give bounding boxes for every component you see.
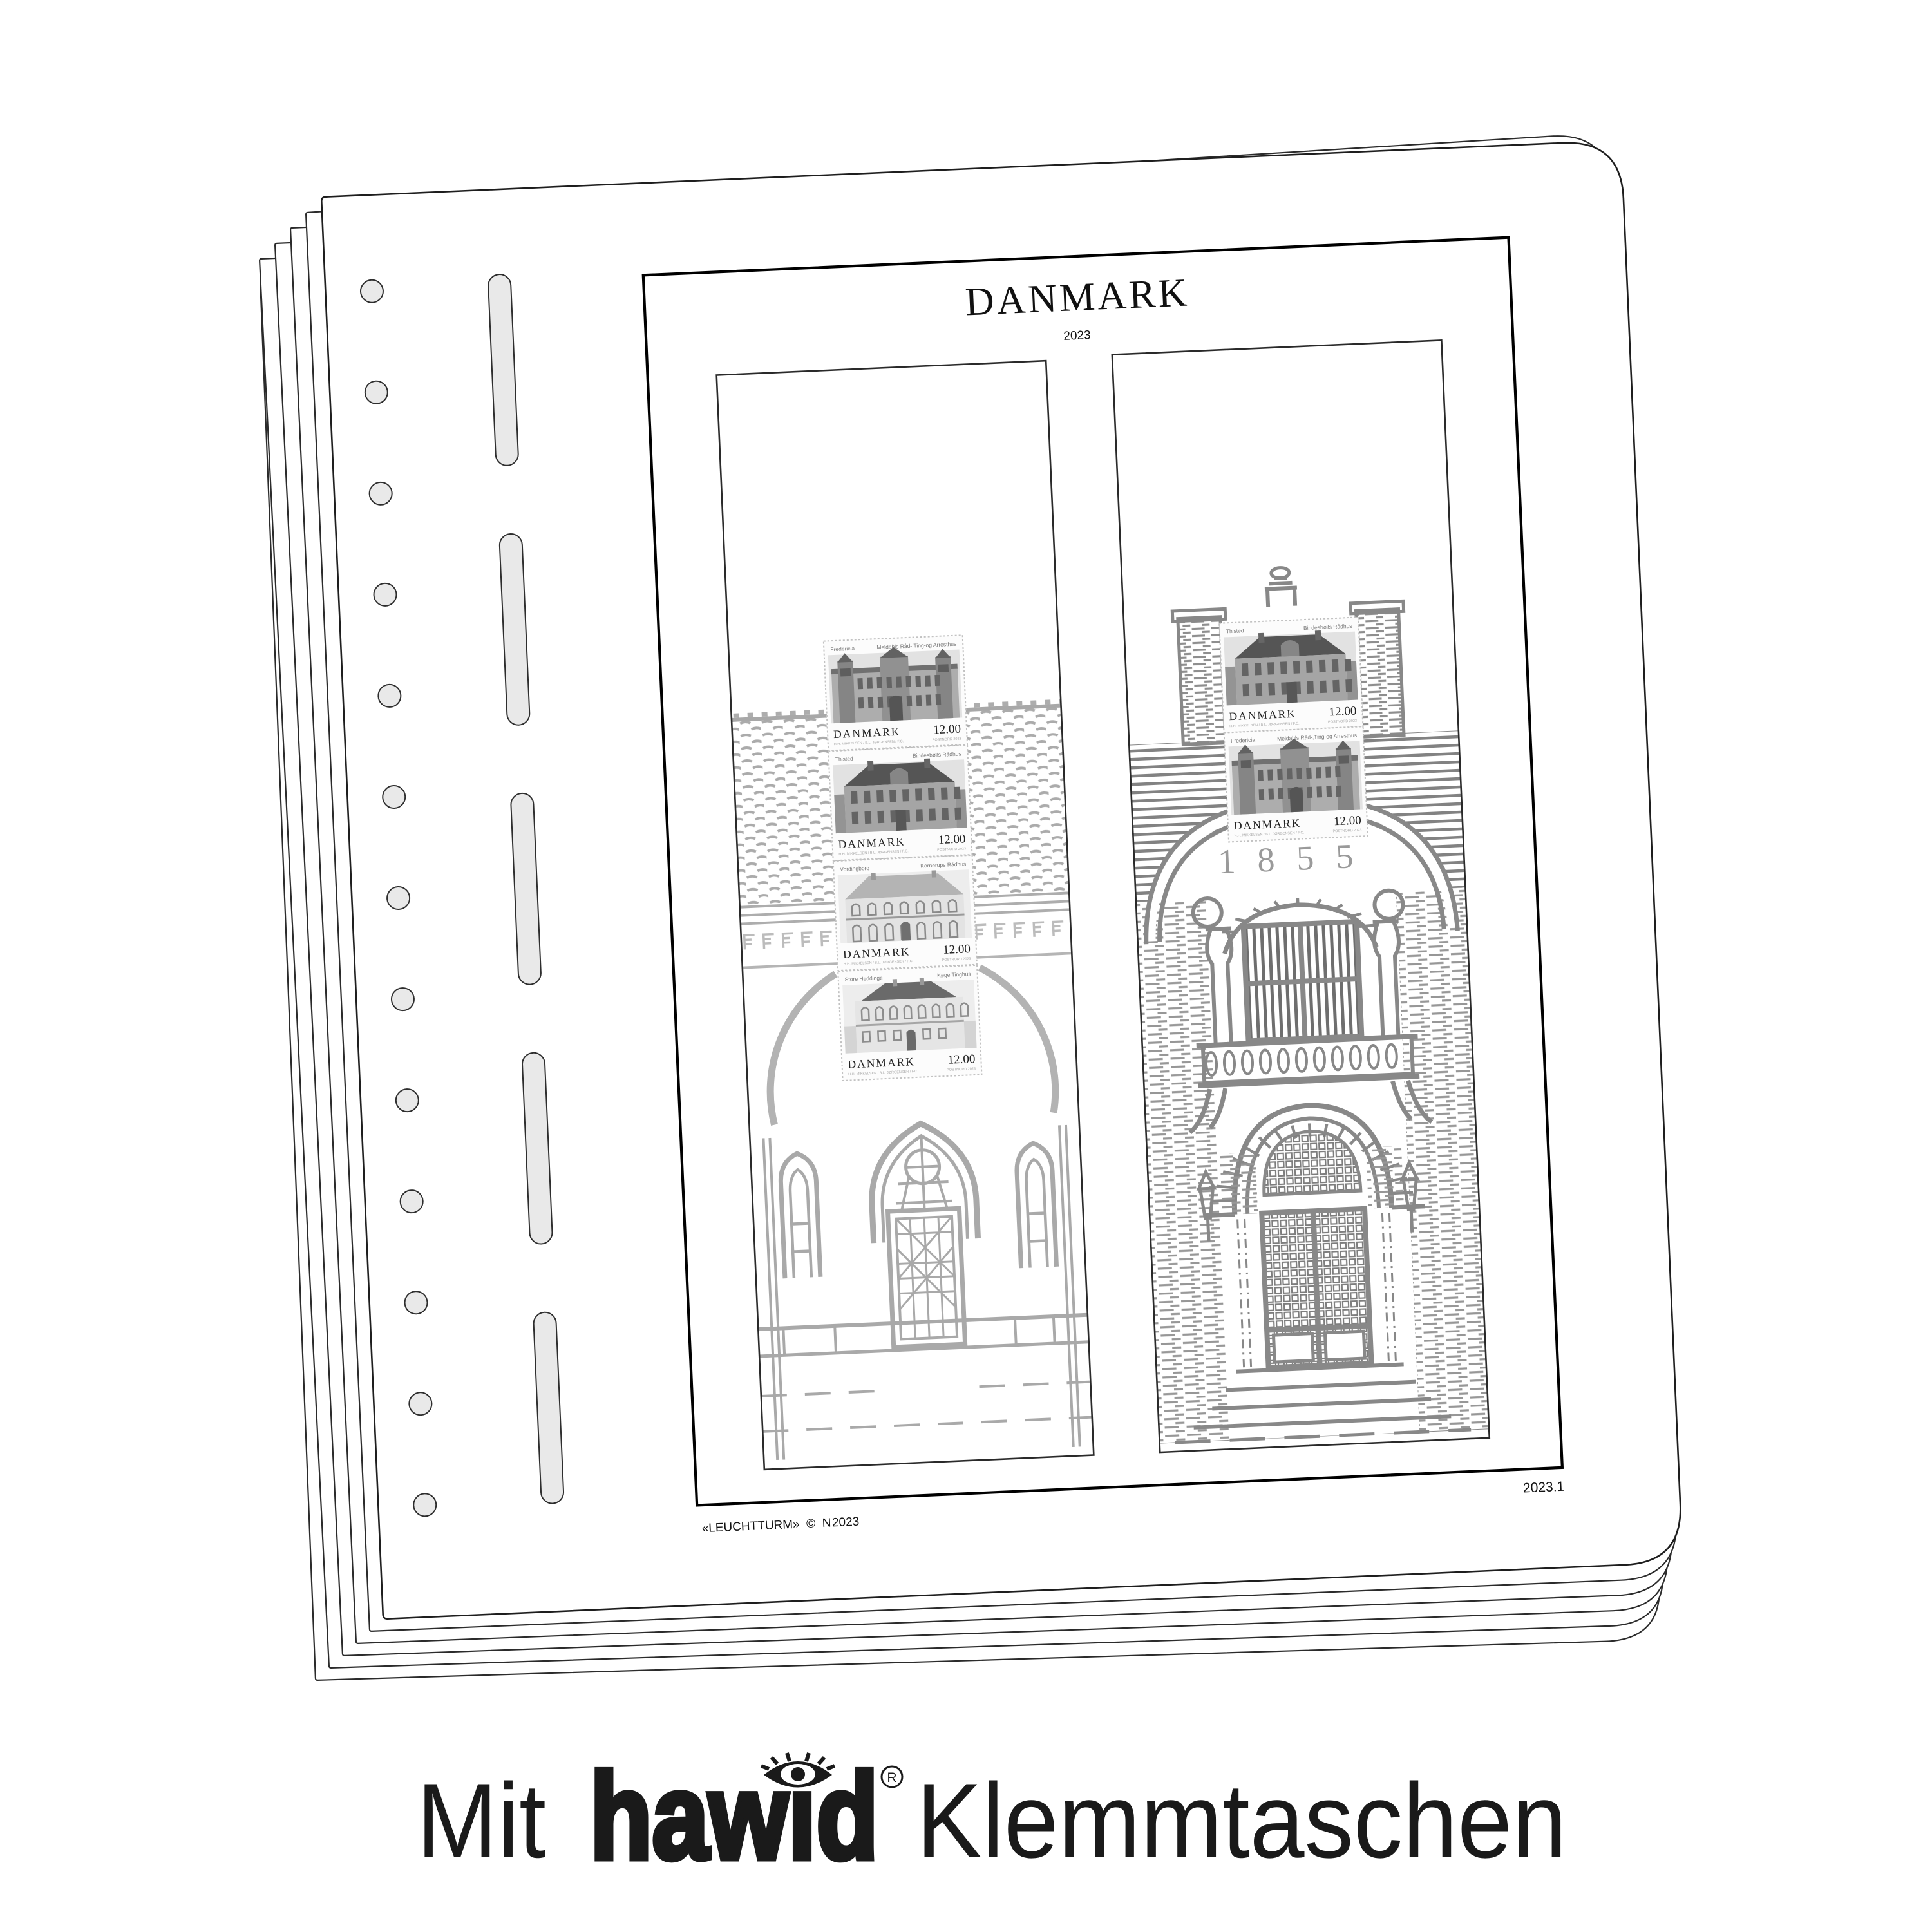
svg-text:Fredericia: Fredericia — [830, 645, 855, 653]
svg-text:2023: 2023 — [1063, 328, 1091, 343]
svg-text:Klemmtaschen: Klemmtaschen — [916, 1761, 1567, 1880]
svg-text:12.00: 12.00 — [1329, 705, 1357, 719]
svg-text:hawıd: hawıd — [590, 1748, 878, 1885]
svg-text:Vordingborg: Vordingborg — [840, 865, 870, 873]
svg-text:Fredericia: Fredericia — [1231, 737, 1255, 744]
svg-text:12.00: 12.00 — [947, 1052, 976, 1067]
svg-text:Thisted: Thisted — [1226, 627, 1245, 634]
svg-text:Mit: Mit — [417, 1761, 546, 1880]
svg-text:R: R — [887, 1770, 896, 1785]
svg-text:1855: 1855 — [1217, 836, 1376, 882]
svg-text:Thisted: Thisted — [835, 755, 854, 762]
svg-text:12.00: 12.00 — [1334, 813, 1362, 828]
svg-text:12.00: 12.00 — [943, 942, 971, 957]
svg-text:12.00: 12.00 — [933, 722, 961, 737]
svg-text:12.00: 12.00 — [938, 832, 966, 847]
svg-text:2023.1: 2023.1 — [1522, 1479, 1564, 1496]
